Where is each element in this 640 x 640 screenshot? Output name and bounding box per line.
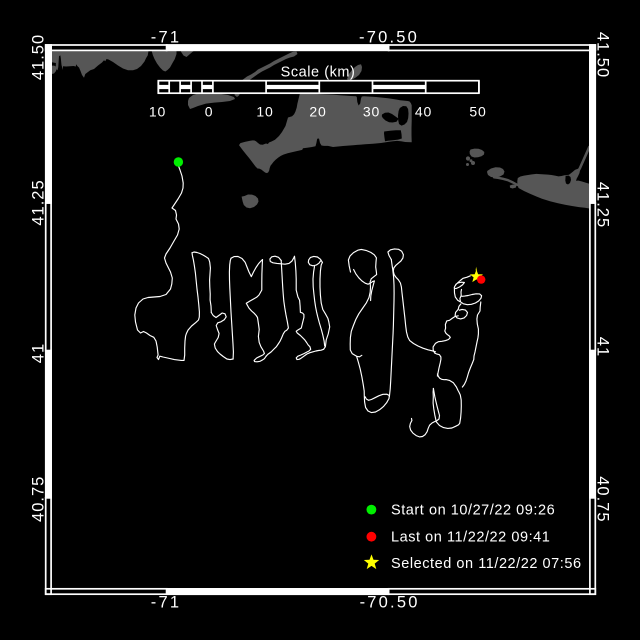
svg-text:-71: -71 [151,29,181,47]
svg-text:41.25: 41.25 [29,179,47,225]
svg-text:Last on 11/22/22 09:41: Last on 11/22/22 09:41 [391,530,550,546]
svg-text:Scale (km): Scale (km) [281,65,356,81]
svg-text:-70.50: -70.50 [360,594,420,612]
svg-text:10: 10 [149,104,166,120]
svg-text:40.75: 40.75 [29,476,47,522]
svg-text:41.25: 41.25 [594,182,612,228]
svg-text:41.50: 41.50 [594,32,612,78]
svg-text:20: 20 [309,104,326,120]
svg-text:Start on 10/27/22 09:26: Start on 10/27/22 09:26 [391,503,555,519]
svg-text:41: 41 [594,337,612,357]
svg-text:0: 0 [205,104,214,120]
svg-text:Selected on 11/22/22 07:56: Selected on 11/22/22 07:56 [391,556,582,572]
svg-text:40: 40 [415,104,432,120]
svg-text:50: 50 [469,104,486,120]
svg-text:-70.50: -70.50 [359,29,419,47]
svg-text:30: 30 [363,104,380,120]
svg-text:-71: -71 [151,594,181,612]
svg-text:41: 41 [29,343,47,363]
svg-text:10: 10 [256,104,273,120]
svg-text:40.75: 40.75 [594,476,612,522]
svg-text:41.50: 41.50 [29,34,47,80]
